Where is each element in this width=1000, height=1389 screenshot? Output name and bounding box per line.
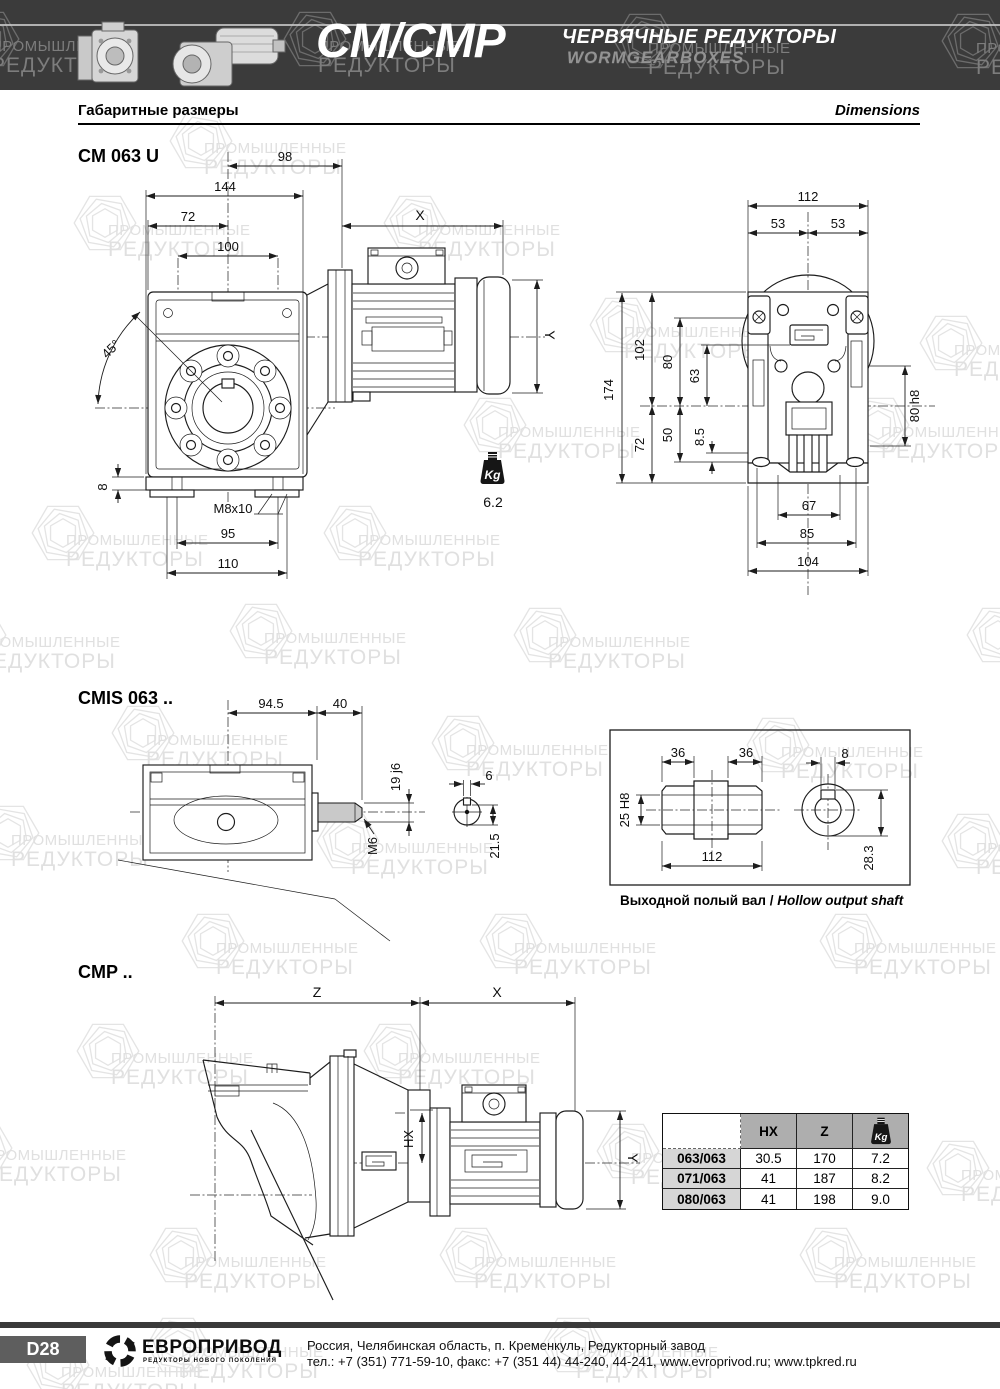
- gearbox-side-body: [742, 275, 874, 483]
- shaft-end-view: 6 21.5: [449, 768, 502, 859]
- table-cell-z: 170: [797, 1149, 853, 1169]
- table-cell-hx: 41: [741, 1169, 797, 1189]
- dim-8-hollow: 8: [841, 746, 848, 761]
- watermark-text: ПРОМЫШЛЕННЫЕРЕДУКТОРЫ: [834, 1255, 976, 1293]
- dim-174: 174: [601, 379, 616, 401]
- dim-95: 95: [221, 526, 235, 541]
- caption-ru: Выходной полый вал: [620, 893, 766, 908]
- dim-Y-cmp: Y: [625, 1153, 640, 1163]
- watermark: ПРОМЫШЛЕННЫЕРЕДУКТОРЫ: [925, 1135, 1000, 1215]
- watermark: ПРОМЫШЛЕННЫЕРЕДУКТОРЫ: [940, 8, 1000, 88]
- watermark: ПРОМЫШЛЕННЫЕРЕДУКТОРЫ: [965, 602, 1000, 682]
- dim-98: 98: [278, 149, 292, 164]
- cmis-housing: [118, 765, 390, 941]
- table-row-name: 063/063: [663, 1149, 741, 1169]
- hollow-shaft-caption: Выходной полый вал / Hollow output shaft: [620, 893, 903, 908]
- hexagon-logo-icon: [0, 602, 8, 668]
- dim-80h8: 80 h8: [907, 390, 922, 423]
- kg-weight-icon: Kg: [870, 1117, 892, 1145]
- header-title-russian: ЧЕРВЯЧНЫЕ РЕДУКТОРЫ: [562, 26, 836, 49]
- kg-icon-label: Kg: [874, 1132, 887, 1143]
- dim-144: 144: [214, 179, 236, 194]
- cmis063-drawing: 94.5 40 19 j6 M6 6 21.5: [78, 688, 578, 958]
- cmp-drawing: Z X: [78, 958, 640, 1303]
- series-title: CM/CMP: [316, 14, 505, 69]
- watermark: ПРОМЫШЛЕННЫЕРЕДУКТОРЫ: [0, 602, 157, 682]
- dim-25h8: 25 H8: [617, 793, 632, 828]
- dim-45deg: 45°: [99, 337, 124, 362]
- cm063u-front-drawing: 98 144 72 100 X Y 45° 8 M8x10: [78, 140, 558, 610]
- hexagon-logo-icon: [940, 8, 1000, 74]
- cmp-motor: [430, 1085, 583, 1216]
- dim-67: 67: [802, 498, 816, 513]
- dim-Z: Z: [313, 984, 322, 1000]
- table-header-kg: Kg: [853, 1114, 908, 1149]
- hexagon-logo-icon: [0, 800, 41, 866]
- watermark: ПРОМЫШЛЕННЫЕРЕДУКТОРЫ: [228, 598, 443, 678]
- dim-72-side: 72: [632, 438, 647, 452]
- table-row-name: 071/063: [663, 1169, 741, 1189]
- catalog-page: CM/CMP ЧЕРВЯЧНЫЕ РЕДУКТОРЫ WORMGEARBOXES…: [0, 0, 1000, 1389]
- dim-53-left: 53: [771, 216, 785, 231]
- company-contacts: тел.: +7 (351) 771-59-10, факс: +7 (351 …: [307, 1354, 857, 1369]
- watermark-text: ПРОМЫШЛЕННЫЕРЕДУКТОРЫ: [264, 631, 406, 669]
- centerlines: [646, 770, 862, 852]
- hexagon-logo-icon: [0, 1115, 14, 1181]
- dim-110: 110: [218, 556, 239, 571]
- caption-en: Hollow output shaft: [777, 893, 903, 908]
- page-header: CM/CMP ЧЕРВЯЧНЫЕ РЕДУКТОРЫ WORMGEARBOXES…: [0, 0, 1000, 90]
- dim-80: 80: [660, 355, 675, 369]
- hexagon-logo-icon: [0, 6, 21, 72]
- motor-side: [307, 248, 510, 435]
- dimensions-hollow: 36 36 25 H8 112 8 28.3: [617, 745, 888, 871]
- weight-value: 6.2: [483, 494, 503, 510]
- dim-21-5: 21.5: [487, 833, 502, 858]
- table-cell-kg: 7.2: [853, 1149, 908, 1169]
- table-cell-hx: 41: [741, 1189, 797, 1209]
- hexagon-logo-icon: [798, 1222, 864, 1288]
- watermark-text: ПРОМЫШЛЕННЫЕРЕДУКТОРЫ: [854, 941, 996, 979]
- table-cell-hx: 30.5: [741, 1149, 797, 1169]
- hexagon-logo-icon: [965, 602, 1000, 668]
- table-header-hx: HX: [741, 1114, 797, 1149]
- section-heading-en: Dimensions: [835, 102, 920, 119]
- table-cell-z: 198: [797, 1189, 853, 1209]
- dim-40: 40: [333, 696, 347, 711]
- weight-spec: Kg 6.2: [481, 452, 505, 510]
- table-cell-z: 187: [797, 1169, 853, 1189]
- dim-112: 112: [798, 189, 819, 204]
- dim-36-right: 36: [739, 745, 753, 760]
- company-address: Россия, Челябинская область, п. Кременку…: [307, 1338, 705, 1353]
- dim-m6: M6: [365, 837, 380, 855]
- dim-HX: HX: [401, 1130, 416, 1148]
- watermark-text: ПРОМЫШЛЕННЫЕРЕДУКТОРЫ: [0, 635, 120, 673]
- cmis063-title: CMIS 063 ..: [78, 688, 173, 709]
- table-row-name: 080/063: [663, 1189, 741, 1209]
- heading-rule: [78, 123, 920, 125]
- watermark: ПРОМЫШЛЕННЫЕРЕДУКТОРЫ: [512, 602, 727, 682]
- watermark: ПРОМЫШЛЕННЫЕРЕДУКТОРЫ: [798, 1222, 1000, 1302]
- hexagon-logo-icon: [925, 1135, 991, 1201]
- dim-28-3: 28.3: [861, 845, 876, 870]
- header-title-english: WORMGEARBOXES: [567, 48, 744, 68]
- dim-50: 50: [660, 428, 675, 442]
- gearbox-photo-1: [78, 22, 138, 82]
- watermark: ПРОМЫШЛЕННЫЕРЕДУКТОРЫ: [818, 908, 1000, 988]
- dim-8-5: 8.5: [692, 428, 707, 446]
- table-header-z: Z: [797, 1114, 853, 1149]
- dim-100: 100: [217, 239, 239, 254]
- watermark-text: ПРОМЫШЛЕННЫЕРЕДУКТОРЫ: [548, 635, 690, 673]
- cmp-dimension-table: HX Z Kg 063/063 30.5 170 7.2 071/063 41 …: [662, 1113, 909, 1210]
- cm063u-title: CM 063 U: [78, 146, 159, 167]
- dim-8: 8: [95, 483, 110, 490]
- dim-X: X: [415, 207, 425, 223]
- kg-icon-label: Kg: [485, 468, 502, 482]
- dim-Y: Y: [542, 330, 558, 340]
- caption-separator: /: [766, 893, 777, 908]
- dim-85: 85: [800, 526, 814, 541]
- table-header-empty: [663, 1114, 741, 1149]
- table-cell-kg: 9.0: [853, 1189, 908, 1209]
- section-heading-ru: Габаритные размеры: [78, 102, 239, 119]
- dim-72: 72: [181, 209, 195, 224]
- dim-19j6: 19 j6: [388, 763, 403, 791]
- hollow-shaft-drawing: 36 36 25 H8 112 8 28.3: [600, 722, 980, 912]
- gearbox-product-photos: [68, 14, 318, 90]
- table-cell-kg: 8.2: [853, 1169, 908, 1189]
- dim-X-cmp: X: [492, 984, 502, 1000]
- watermark-text: ПРОМЫШЛЕННЫЕРЕДУКТОРЫ: [961, 1168, 1000, 1206]
- watermark-text: ПРОМЫШЛЕННЫЕРЕДУКТОРЫ: [976, 41, 1000, 79]
- gearbox-housing-front: [146, 292, 307, 497]
- dim-63: 63: [687, 369, 702, 383]
- company-name: ЕВРОПРИВОД: [142, 1337, 282, 1359]
- gearbox-photo-2: [173, 28, 285, 86]
- dim-112-hollow: 112: [702, 849, 723, 864]
- hexagon-logo-icon: [512, 602, 578, 668]
- dim-6: 6: [485, 768, 492, 783]
- dim-36-left: 36: [671, 745, 685, 760]
- footer-divider: [0, 1322, 1000, 1328]
- cmp-title: CMP ..: [78, 962, 133, 983]
- cm063u-side-drawing: 112 53 53 174 102 80 63 72 50 8.5: [598, 150, 994, 600]
- hexagon-logo-icon: [818, 908, 884, 974]
- company-tagline: РЕДУКТОРЫ НОВОГО ПОКОЛЕНИЯ: [143, 1358, 277, 1364]
- cmp-gearbox-cutaway: [203, 1050, 430, 1300]
- page-number: D28: [0, 1336, 86, 1363]
- dim-104: 104: [797, 554, 819, 569]
- evroprivod-logo-icon: [102, 1333, 138, 1369]
- dim-53-right: 53: [831, 216, 845, 231]
- dim-94-5: 94.5: [258, 696, 283, 711]
- dim-m8x10: M8x10: [213, 501, 252, 516]
- kg-weight-icon: Kg: [481, 452, 505, 484]
- dim-102: 102: [632, 339, 647, 361]
